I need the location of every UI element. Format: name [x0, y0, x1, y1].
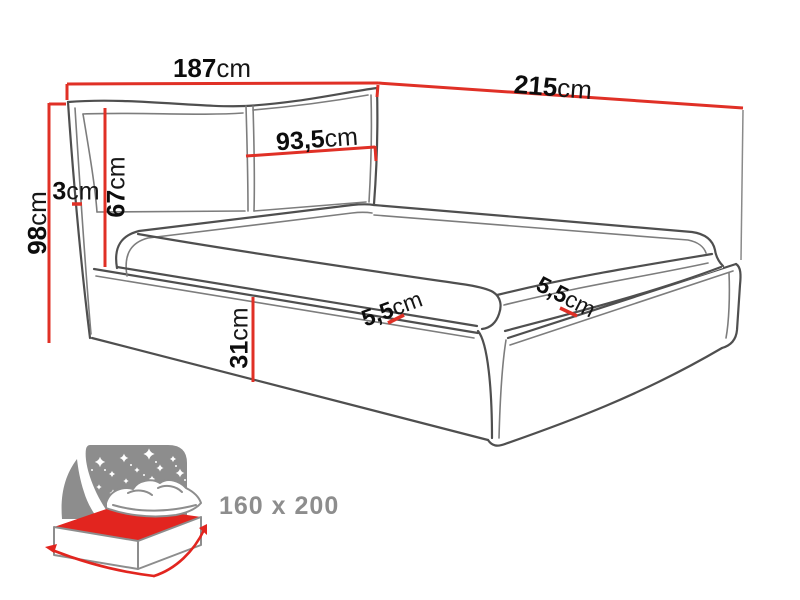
label-headboard-side-gap: 3cm [52, 180, 99, 205]
projection-line [741, 110, 743, 260]
storage-bed-icon [45, 445, 207, 576]
bed-dimension-diagram: 187cm 215cm 98cm 67cm 3cm 93,5cm 31cm 5,… [0, 0, 800, 600]
label-total-height: 98cm [24, 191, 50, 255]
label-frame-height: 31cm [228, 307, 253, 368]
label-headboard-width: 187cm [173, 55, 251, 81]
label-bed-length: 215cm [513, 71, 593, 103]
label-headboard-half-width: 93,5cm [275, 125, 359, 156]
width-dimension-line [67, 83, 378, 84]
size-badge: 160 x 200 [219, 492, 339, 521]
label-headboard-height: 67cm [105, 156, 130, 217]
